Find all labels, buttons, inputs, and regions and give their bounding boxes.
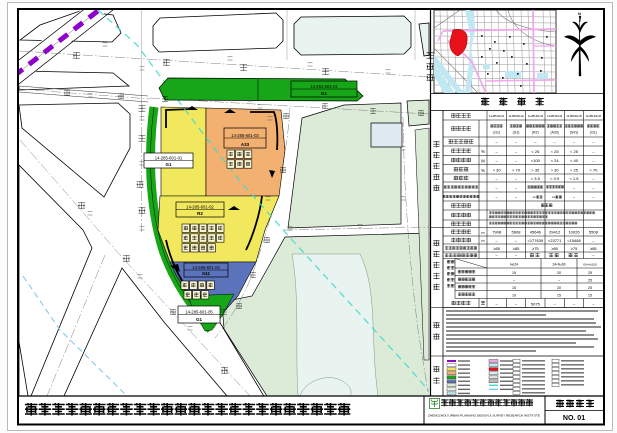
svg-text:(R2): (R2) [532, 131, 539, 135]
svg-text:> 25: > 25 [570, 168, 579, 173]
svg-text:< 25: < 25 [531, 149, 540, 154]
svg-text:(S41): (S41) [570, 131, 578, 135]
svg-text:> 35: > 35 [531, 168, 540, 173]
svg-text:H≤24: H≤24 [510, 263, 518, 267]
svg-text:> 30: > 30 [493, 168, 502, 173]
svg-text:14-285-601-05: 14-285-601-05 [185, 309, 213, 314]
svg-text:≥75: ≥75 [532, 246, 539, 251]
svg-text:14-285-601-01: 14-285-601-01 [489, 114, 505, 118]
svg-text:R2: R2 [197, 211, 203, 216]
svg-text:14-285-601-04: 14-285-601-04 [192, 265, 220, 270]
svg-text:≥85: ≥85 [493, 246, 500, 251]
svg-text:< 0.9: < 0.9 [550, 176, 560, 181]
svg-text:15: 15 [512, 286, 516, 290]
svg-text:S41: S41 [202, 271, 211, 276]
svg-text:20: 20 [557, 271, 561, 275]
svg-text:NO. 01: NO. 01 [563, 415, 585, 422]
svg-text:m: m [481, 239, 484, 243]
svg-text:14-285-601-03: 14-285-601-03 [231, 133, 259, 138]
svg-text:5075: 5075 [531, 301, 541, 306]
svg-text:15: 15 [512, 271, 516, 275]
svg-text:7908: 7908 [492, 230, 502, 235]
svg-text:14-285-601-02: 14-285-601-02 [508, 114, 524, 118]
svg-text:≥85: ≥85 [590, 246, 597, 251]
svg-text:M: M [481, 159, 485, 164]
svg-text:20: 20 [557, 286, 561, 290]
svg-text:≥85: ≥85 [513, 246, 520, 251]
svg-text:60<H≤100: 60<H≤100 [583, 263, 597, 267]
svg-text:m: m [481, 231, 484, 235]
svg-text:29412: 29412 [549, 230, 561, 235]
svg-text:< 25: < 25 [551, 149, 560, 154]
svg-text:14-285-601-01: 14-285-601-01 [155, 155, 183, 160]
svg-text:14-285-601-04: 14-285-601-04 [547, 114, 563, 118]
svg-text:≥75: ≥75 [571, 246, 578, 251]
svg-text:<15488: <15488 [567, 238, 581, 243]
svg-text:14-285-601-06: 14-285-601-06 [586, 114, 602, 118]
svg-text:(G1): (G1) [590, 131, 597, 135]
svg-text:10026: 10026 [568, 230, 580, 235]
svg-text:–: – [558, 279, 560, 283]
svg-text:10: 10 [512, 294, 516, 298]
svg-text:(G1): (G1) [493, 131, 500, 135]
svg-text:> 70: > 70 [512, 168, 521, 173]
svg-text:ZHENGZHOU URBAN PLANNING DESIG: ZHENGZHOU URBAN PLANNING DESIGN & SURVEY… [428, 414, 540, 418]
svg-text:< 40: < 40 [570, 158, 579, 163]
svg-text:5508: 5508 [589, 230, 599, 235]
svg-text:< 1.5: < 1.5 [569, 176, 579, 181]
svg-text:N: N [578, 11, 581, 16]
svg-text:24<H≤60: 24<H≤60 [552, 263, 565, 267]
svg-text:5608: 5608 [512, 230, 522, 235]
svg-text:(G1): (G1) [513, 131, 520, 135]
svg-text:≥80: ≥80 [551, 246, 558, 251]
svg-text:14-281-601-01: 14-281-601-01 [310, 84, 338, 89]
svg-text:G1: G1 [321, 91, 328, 96]
svg-text:> 70: > 70 [589, 168, 598, 173]
svg-text:%: % [481, 168, 485, 173]
svg-text:G1: G1 [165, 162, 172, 167]
svg-text:14-285-601-05: 14-285-601-05 [566, 114, 582, 118]
svg-text:14-285-601-02: 14-285-601-02 [186, 204, 214, 209]
svg-text:(A33): (A33) [551, 131, 559, 135]
svg-text:A33: A33 [241, 142, 250, 147]
svg-text:<23771: <23771 [548, 238, 562, 243]
svg-text:G1: G1 [196, 317, 203, 322]
svg-text:15: 15 [588, 294, 592, 298]
svg-text:–: – [513, 279, 515, 283]
svg-text:15: 15 [557, 294, 561, 298]
svg-text:< 25: < 25 [570, 149, 579, 154]
svg-text:< 24: < 24 [551, 158, 560, 163]
svg-text:25: 25 [588, 271, 592, 275]
svg-text:25: 25 [588, 279, 592, 283]
svg-text:25: 25 [588, 286, 592, 290]
svg-text:> 30: > 30 [551, 168, 560, 173]
svg-text:<177639: <177639 [528, 238, 544, 243]
svg-text:%: % [481, 149, 485, 154]
svg-text:45646: 45646 [530, 230, 542, 235]
svg-text:<100: <100 [531, 158, 541, 163]
svg-text:< 3.5: < 3.5 [531, 176, 541, 181]
svg-text:14-285-601-03: 14-285-601-03 [528, 114, 544, 118]
